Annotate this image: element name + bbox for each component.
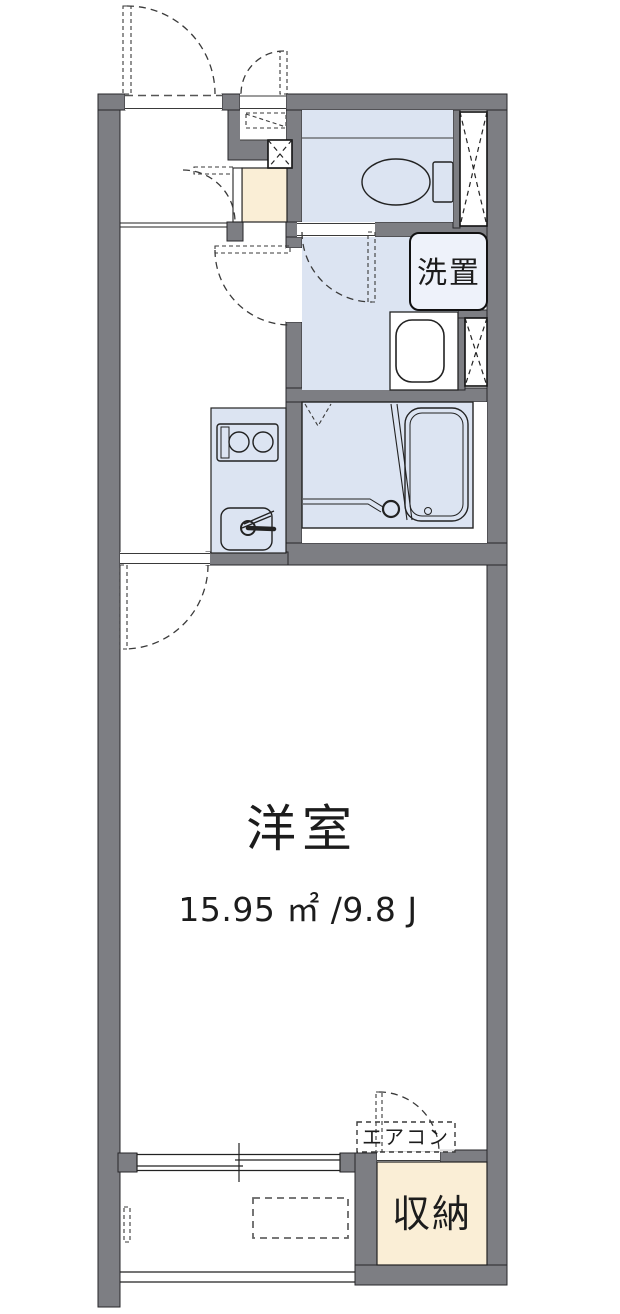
genkan-wall-stub — [227, 222, 243, 241]
bathroom-unit-area — [302, 402, 473, 528]
kitchen-bottom-wall — [206, 552, 288, 565]
alcove-hatch-arc — [241, 51, 284, 94]
window-left-jamb — [118, 1153, 137, 1172]
mainroom-door-leaf — [120, 565, 127, 649]
toilet-ps-sliver — [453, 110, 460, 228]
toilet-room-area — [302, 110, 453, 222]
shoe-cabinet — [242, 168, 287, 222]
spine-wall-lower — [286, 322, 302, 565]
washbasin-counter — [390, 312, 458, 390]
main-room-label: 洋室 — [246, 800, 358, 858]
balcony-railing — [120, 1272, 355, 1282]
faucet-spout — [248, 528, 274, 529]
balcony-drain-strip — [124, 1207, 130, 1242]
genkan-partition-line — [120, 223, 227, 227]
bath-bottom-wall — [286, 543, 507, 565]
storage-label: 収納 — [392, 1192, 472, 1236]
laundry-ps-sliver-v — [458, 318, 465, 390]
kitchen-counter-area — [211, 408, 286, 553]
outer-wall-right — [487, 94, 507, 1285]
washroom-door-leaf — [215, 246, 290, 253]
alcove-hatch-leaf — [280, 51, 287, 94]
top-wall-left-seg — [98, 94, 125, 110]
genkan-door-arc — [183, 170, 235, 222]
main-room-area-label: 15.95 ㎡ /9.8 J — [178, 890, 417, 929]
floorplan: 洋室 15.95 ㎡ /9.8 J 洗置 収納 エアコン — [0, 0, 620, 1314]
outer-wall-left — [98, 94, 120, 1307]
balcony-equipment-pad — [253, 1198, 348, 1238]
washroom-door-arc — [215, 250, 290, 325]
top-wall-right-seg — [286, 94, 507, 110]
entrance-door-leaf — [123, 6, 131, 94]
entrance-door-arc — [127, 6, 215, 94]
washroom-door-opening — [286, 248, 302, 322]
closet-bottom-wall — [355, 1265, 507, 1285]
entrance-opening — [125, 94, 222, 110]
aircon-label: エアコン — [362, 1125, 450, 1149]
toilet-door-opening — [297, 222, 375, 237]
floorplan-svg: 洋室 15.95 ㎡ /9.8 J 洗置 収納 エアコン — [0, 0, 620, 1314]
laundry-label: 洗置 — [417, 256, 481, 291]
top-wall-mid-seg — [222, 94, 240, 110]
mainroom-door-arc — [124, 565, 208, 649]
